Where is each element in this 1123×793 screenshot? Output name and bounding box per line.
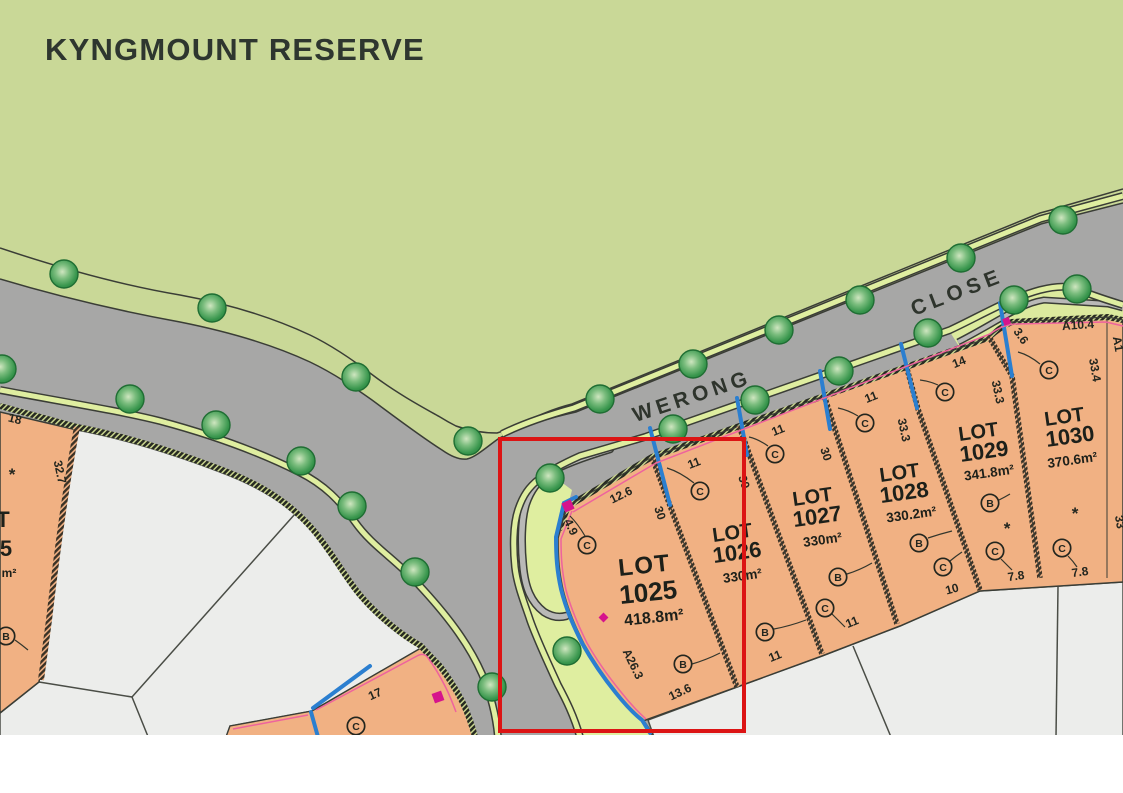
svg-text:7.8: 7.8 [1007,568,1026,584]
svg-text:C: C [941,387,949,399]
svg-text:C: C [771,449,779,461]
svg-text:T: T [0,507,10,532]
svg-text:*: * [1004,519,1011,538]
svg-text:B: B [761,627,769,639]
svg-text:C: C [696,486,704,498]
svg-text:KYNGMOUNT RESERVE: KYNGMOUNT RESERVE [45,32,425,67]
svg-text:5: 5 [0,536,12,561]
svg-text:B: B [915,538,923,550]
svg-text:*: * [1072,504,1079,523]
svg-text:7.8: 7.8 [1071,564,1090,580]
svg-text:A10.4: A10.4 [1062,317,1095,333]
svg-text:C: C [991,546,999,558]
svg-text:C: C [861,418,869,430]
svg-text:B: B [2,631,10,643]
svg-text:B: B [679,659,687,671]
svg-text:C: C [1058,543,1066,555]
svg-text:C: C [821,603,829,615]
svg-text:C: C [583,540,591,552]
svg-text:C: C [939,562,947,574]
svg-text:C: C [352,721,360,733]
svg-text:C: C [1045,365,1053,377]
svg-text:B: B [986,498,994,510]
svg-text:*: * [9,465,16,484]
svg-text:m²: m² [2,566,17,580]
svg-text:B: B [834,572,842,584]
svg-text:1025: 1025 [618,574,679,610]
